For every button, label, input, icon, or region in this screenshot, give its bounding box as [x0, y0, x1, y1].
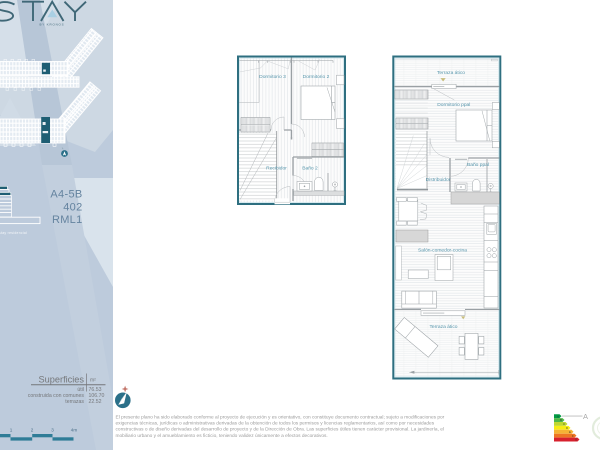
- svg-text:E: E: [569, 430, 571, 434]
- svg-text:Baño ppal: Baño ppal: [467, 162, 489, 168]
- svg-text:2: 2: [31, 428, 34, 433]
- svg-text:1: 1: [10, 428, 13, 433]
- svg-text:stay residencial: stay residencial: [0, 231, 27, 235]
- svg-text:Dormitorio ppal: Dormitorio ppal: [437, 102, 470, 108]
- svg-text:22.52: 22.52: [89, 399, 102, 405]
- svg-text:D: D: [566, 426, 568, 430]
- svg-text:m²: m²: [90, 378, 96, 384]
- svg-text:El presente plano ha sido elab: El presente plano ha sido elaborado conf…: [116, 414, 445, 420]
- svg-text:3: 3: [51, 428, 54, 433]
- svg-text:Terraza ático: Terraza ático: [437, 70, 465, 76]
- svg-text:F: F: [572, 434, 574, 438]
- svg-text:Recibidor: Recibidor: [266, 166, 287, 172]
- svg-text:Salón-comedor-cocina: Salón-comedor-cocina: [418, 248, 467, 254]
- svg-text:A: A: [557, 414, 559, 418]
- svg-text:BY KRONOS: BY KRONOS: [40, 23, 65, 27]
- svg-text:Dormitorio 3: Dormitorio 3: [259, 74, 286, 80]
- svg-text:mobiliario urbano y el amuebla: mobiliario urbano y el amueblamiento es …: [116, 433, 328, 439]
- svg-text:A: A: [583, 412, 588, 421]
- svg-text:Dormitorio 2: Dormitorio 2: [303, 74, 330, 80]
- svg-text:Distribuidor: Distribuidor: [426, 177, 451, 183]
- svg-text:constructivas o de diseño deri: constructivas o de diseño derivadas del …: [116, 427, 445, 433]
- svg-text:terrazas: terrazas: [65, 399, 84, 405]
- svg-text:Superficies: Superficies: [39, 375, 85, 385]
- svg-text:76.53: 76.53: [89, 387, 102, 393]
- svg-text:4m: 4m: [71, 428, 78, 433]
- svg-text:B: B: [560, 418, 562, 422]
- svg-text:Baño 2: Baño 2: [302, 166, 318, 172]
- svg-text:402: 402: [63, 202, 82, 214]
- svg-text:RML1: RML1: [52, 214, 83, 226]
- svg-text:106.70: 106.70: [89, 393, 105, 399]
- svg-text:exigencias técnicas, jurídicas: exigencias técnicas, jurídicas o adminis…: [116, 421, 435, 427]
- svg-text:útil: útil: [77, 387, 84, 393]
- svg-text:Terraza ático: Terraza ático: [430, 324, 458, 330]
- svg-text:construida con comunes: construida con comunes: [28, 393, 85, 399]
- svg-text:C: C: [563, 422, 565, 426]
- svg-text:A4-5B: A4-5B: [50, 189, 82, 201]
